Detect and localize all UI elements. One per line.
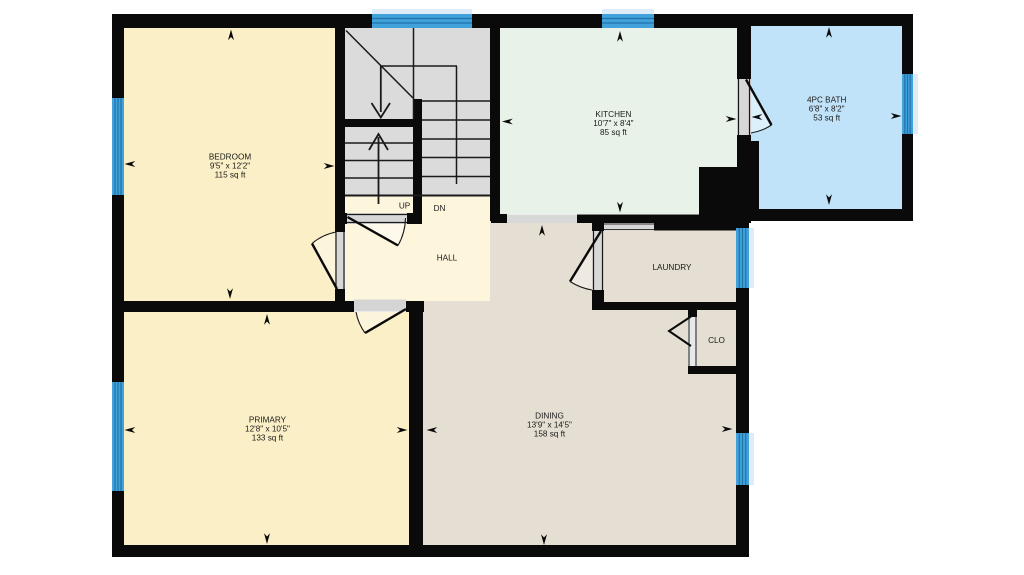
svg-text:85 sq ft: 85 sq ft (600, 128, 628, 137)
svg-text:BEDROOM: BEDROOM (209, 153, 251, 162)
svg-text:53 sq ft: 53 sq ft (813, 114, 841, 123)
svg-text:LAUNDRY: LAUNDRY (653, 263, 693, 272)
svg-text:9'5" x 12'2": 9'5" x 12'2" (210, 162, 250, 171)
svg-text:DN: DN (434, 204, 446, 213)
svg-text:UP: UP (399, 202, 411, 211)
svg-text:6'8" x 8'2": 6'8" x 8'2" (809, 105, 845, 114)
svg-text:12'8" x 10'5": 12'8" x 10'5" (245, 425, 290, 434)
svg-text:133 sq ft: 133 sq ft (252, 434, 284, 443)
svg-text:PRIMARY: PRIMARY (249, 416, 287, 425)
svg-text:CLO: CLO (708, 336, 725, 345)
svg-text:158 sq ft: 158 sq ft (534, 430, 566, 439)
svg-text:DINING: DINING (535, 412, 564, 421)
svg-text:4PC BATH: 4PC BATH (807, 96, 847, 105)
svg-text:KITCHEN: KITCHEN (595, 110, 631, 119)
svg-text:115 sq ft: 115 sq ft (215, 171, 247, 180)
svg-text:HALL: HALL (437, 254, 458, 263)
svg-text:10'7" x 8'4": 10'7" x 8'4" (593, 119, 633, 128)
svg-text:13'9" x 14'5": 13'9" x 14'5" (527, 421, 572, 430)
